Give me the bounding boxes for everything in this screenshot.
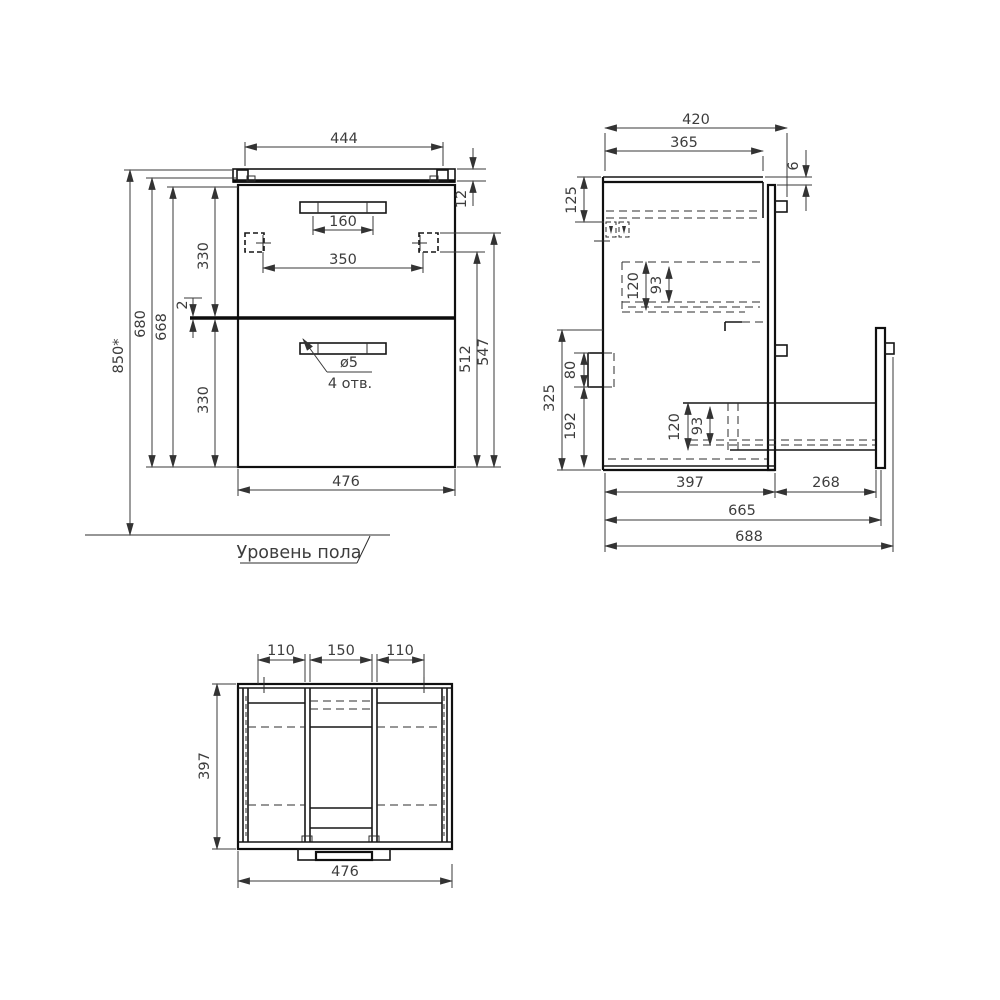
- dim-fv-handle-spacing: 160: [329, 214, 357, 230]
- dim-sv-lower-zone: 325: [542, 384, 558, 412]
- callout-hole-diameter: ø5: [340, 355, 358, 371]
- dim-sv-lower-93: 93: [690, 417, 706, 435]
- technical-drawing: 444 12 160 350 476: [0, 0, 1000, 1000]
- dim-fv-lower-drawer: 330: [196, 386, 212, 414]
- dim-sv-drawer-extension: 268: [812, 475, 840, 491]
- dim-fv-top-width: 444: [330, 131, 358, 147]
- front-view-dimensions: 444 12 160 350 476: [111, 131, 501, 535]
- dim-sv-back-gap: 6: [786, 161, 802, 170]
- dim-sv-bracket: 80: [563, 361, 579, 379]
- side-view: 420 365 6 125 120 93 325: [542, 112, 894, 552]
- dim-fv-512: 512: [458, 345, 474, 373]
- dim-sv-bottom-zone: 192: [563, 412, 579, 440]
- dim-sv-688: 688: [735, 529, 763, 545]
- floor-level: Уровень пола: [85, 535, 390, 563]
- dim-fv-top-thickness: 12: [454, 190, 470, 208]
- dim-fv-gap: 2: [175, 300, 191, 309]
- side-view-dimensions: 420 365 6 125 120 93 325: [542, 112, 893, 552]
- dim-fv-overall-height: 850*: [111, 339, 127, 374]
- dim-fv-mount-spacing: 350: [329, 252, 357, 268]
- callout-hole-count: 4 отв.: [328, 376, 372, 392]
- dim-fv-668: 668: [154, 313, 170, 341]
- dim-sv-body-depth: 397: [676, 475, 704, 491]
- dim-sv-lower-120: 120: [667, 413, 683, 441]
- dim-tv-width: 476: [331, 864, 359, 880]
- drawing-page: 444 12 160 350 476: [0, 0, 1000, 1000]
- top-view-structure: [238, 677, 452, 860]
- dim-fv-upper-drawer: 330: [196, 242, 212, 270]
- dim-sv-upper-120: 120: [626, 272, 642, 300]
- front-view: 444 12 160 350 476: [85, 131, 501, 563]
- dim-tv-right-bay: 110: [386, 643, 414, 659]
- floor-level-label: Уровень пола: [237, 543, 362, 563]
- dim-sv-upper-93: 93: [649, 276, 665, 294]
- dim-sv-top-depth: 365: [670, 135, 698, 151]
- dim-fv-680: 680: [133, 310, 149, 338]
- dim-tv-left-bay: 110: [267, 643, 295, 659]
- dim-tv-center-bay: 150: [327, 643, 355, 659]
- dim-sv-overall-depth: 420: [682, 112, 710, 128]
- dim-tv-depth: 397: [197, 752, 213, 780]
- front-view-structure: [190, 169, 455, 467]
- dim-sv-mount-offset: 125: [564, 186, 580, 214]
- top-view: 110 150 110 397 476: [197, 643, 452, 888]
- dim-fv-width: 476: [332, 474, 360, 490]
- dim-sv-665: 665: [728, 503, 756, 519]
- dim-fv-547: 547: [476, 338, 492, 366]
- side-view-structure: [557, 177, 894, 470]
